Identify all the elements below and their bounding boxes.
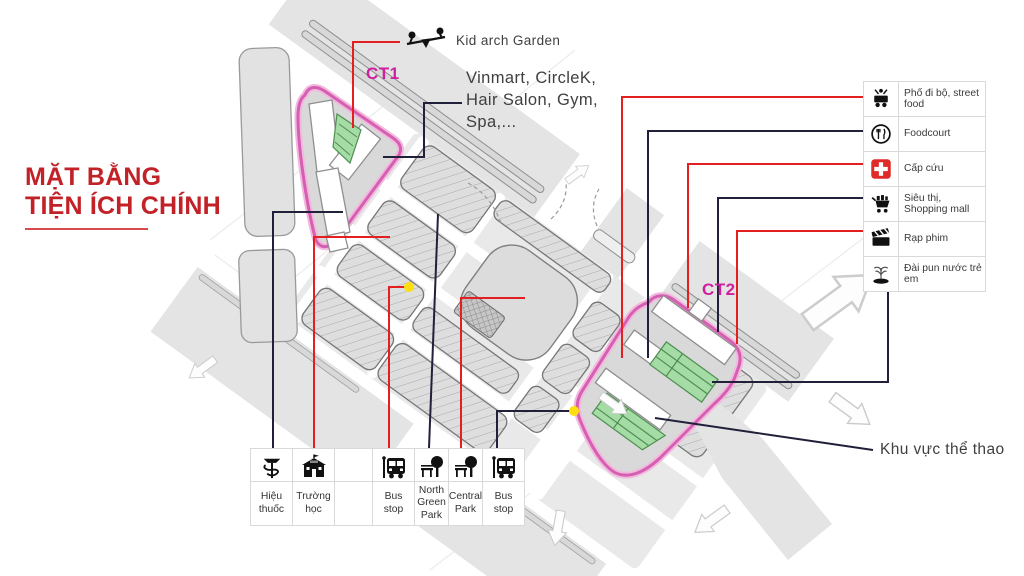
legend-row-street-food: Phố đi bộ, street food [864, 82, 985, 117]
legend-row-first-aid: Cấp cứu [864, 152, 985, 187]
pharmacy-icon [251, 449, 292, 482]
first-aid-icon [864, 152, 899, 186]
amenity-legend: Phố đi bộ, street food Foodcourt Cấp cứu [863, 81, 986, 292]
legend-col-empty [335, 449, 373, 525]
page-title: MẶT BẰNG TIỆN ÍCH CHÍNH [25, 163, 255, 221]
legend-col-school: Trường học [293, 449, 335, 525]
street-food-cart-icon [864, 82, 899, 116]
legend-row-foodcourt: Foodcourt [864, 117, 985, 152]
legend-col-bus-stop-1: Bus stop [373, 449, 415, 525]
facility-legend: Hiệu thuốc Trường học [250, 448, 525, 526]
fountain-icon [864, 257, 899, 291]
legend-row-cinema: Rạp phim [864, 222, 985, 257]
bus-stop-marker [569, 406, 579, 416]
legend-col-pharmacy: Hiệu thuốc [251, 449, 293, 525]
zone-label-ct2: CT2 [702, 280, 736, 300]
park-bench-icon [415, 449, 448, 482]
legend-row-supermarket: Siêu thị, Shopping mall [864, 187, 985, 222]
park-bench-icon [449, 449, 482, 482]
school-icon [293, 449, 334, 482]
zone-label-ct1: CT1 [366, 64, 400, 84]
kid-garden-label: Kid arch Garden [456, 33, 560, 48]
shopping-cart-icon [864, 187, 899, 221]
legend-col-north-green-park: North Green Park [415, 449, 449, 525]
clapperboard-icon [864, 222, 899, 256]
legend-col-bus-stop-2: Bus stop [483, 449, 524, 525]
legend-row-fountain: Đài pun nước trẻ em [864, 257, 985, 291]
retail-annotation: Vinmart, CircleK, Hair Salon, Gym, Spa,.… [466, 68, 598, 133]
bus-icon [483, 449, 524, 482]
foodcourt-icon [864, 117, 899, 151]
title-underline [25, 228, 148, 230]
slide: MẶT BẰNG TIỆN ÍCH CHÍNH CT1 CT2 Kid arch… [0, 0, 1024, 576]
bus-stop-marker [404, 282, 414, 292]
seesaw-kids-icon [402, 26, 450, 54]
legend-col-central-park: Central Park [449, 449, 483, 525]
bus-icon [373, 449, 414, 482]
sport-area-label: Khu vực thể thao [880, 441, 1005, 459]
